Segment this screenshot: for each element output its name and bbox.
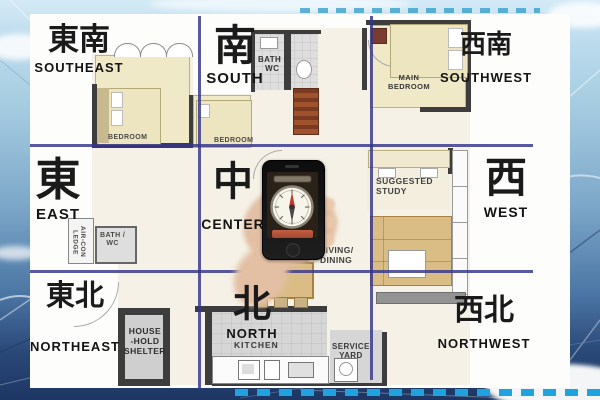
northwest-chinese: 西北	[454, 296, 514, 326]
direction-label-west: 西 WEST	[480, 158, 532, 220]
southeast-english: SOUTHEAST	[34, 60, 123, 75]
phone-speaker	[285, 165, 299, 168]
sink-icon	[288, 362, 314, 378]
window-strip	[452, 150, 468, 300]
direction-label-center: 中 CENTER	[202, 162, 264, 232]
compass-app-banner	[272, 230, 313, 238]
compass-heading-readout	[274, 176, 311, 182]
study-desk	[368, 150, 450, 168]
west-chinese: 西	[485, 158, 527, 200]
room-label-kitchen: KITCHEN	[234, 341, 279, 351]
feng-shui-floor-plan-image: BEDROOM BEDROOM BATH / WC MAIN BEDROOM S…	[0, 0, 600, 400]
wall-segment	[362, 28, 367, 90]
coffee-table	[388, 250, 426, 278]
wall-segment	[205, 312, 212, 385]
direction-label-northeast: 東北 NORTHEAST	[28, 282, 122, 354]
washing-machine-drum	[339, 362, 353, 376]
northwest-english: NORTHWEST	[438, 336, 531, 351]
pillow	[111, 110, 123, 126]
wall-segment	[420, 107, 470, 112]
phone-home-button	[286, 243, 300, 257]
dining-chair	[294, 297, 308, 308]
room-label-suggested-study: SUGGESTED STUDY	[376, 177, 433, 197]
dashed-line-top	[300, 8, 540, 13]
compass-dial-icon	[270, 185, 314, 229]
direction-label-east: 東 EAST	[30, 158, 86, 223]
north-english: NORTH	[226, 326, 277, 341]
room-label-household-shelter: HOUSE -HOLD SHELTER	[124, 327, 166, 356]
center-chinese: 中	[213, 162, 253, 202]
north-chinese: 北	[233, 286, 271, 324]
toilet-icon	[296, 60, 312, 79]
direction-label-south: 南 SOUTH	[200, 26, 270, 87]
room-label-service-yard: SERVICE YARD	[332, 342, 370, 360]
northeast-chinese: 東北	[46, 282, 104, 311]
direction-label-southeast: 東南 SOUTHEAST	[34, 24, 124, 75]
dashed-line-bottom	[235, 389, 600, 396]
east-english: EAST	[36, 206, 80, 223]
wall-segment	[189, 95, 193, 148]
southeast-chinese: 東南	[48, 24, 110, 55]
grid-line-horizontal-upper	[30, 144, 533, 147]
room-label-bedroom-1: BEDROOM	[108, 134, 147, 142]
east-chinese: 東	[35, 158, 80, 203]
room-label-main-bedroom: MAIN BEDROOM	[388, 74, 430, 91]
south-chinese: 南	[214, 26, 256, 68]
south-english: SOUTH	[206, 70, 264, 87]
stove-burners	[242, 364, 254, 374]
staircase	[293, 88, 319, 135]
west-english: WEST	[484, 204, 528, 220]
room-label-bath-wc-lower: BATH / WC	[100, 232, 125, 248]
northeast-english: NORTHEAST	[30, 339, 120, 354]
room-label-aircon-ledge: AIR-CON LEDGE	[71, 221, 86, 263]
direction-label-southwest: 西南 SOUTHWEST	[438, 32, 534, 85]
southwest-chinese: 西南	[460, 32, 512, 58]
pillow	[111, 92, 123, 108]
center-english: CENTER	[201, 216, 265, 232]
southwest-english: SOUTHWEST	[440, 70, 532, 85]
grid-line-vertical-right	[370, 16, 373, 380]
wall-segment	[382, 332, 387, 384]
direction-label-northwest: 西北 NORTHWEST	[434, 296, 534, 351]
kitchen-appliance	[264, 360, 280, 380]
direction-label-north: 北 NORTH	[224, 286, 280, 341]
wardrobe	[371, 28, 387, 44]
